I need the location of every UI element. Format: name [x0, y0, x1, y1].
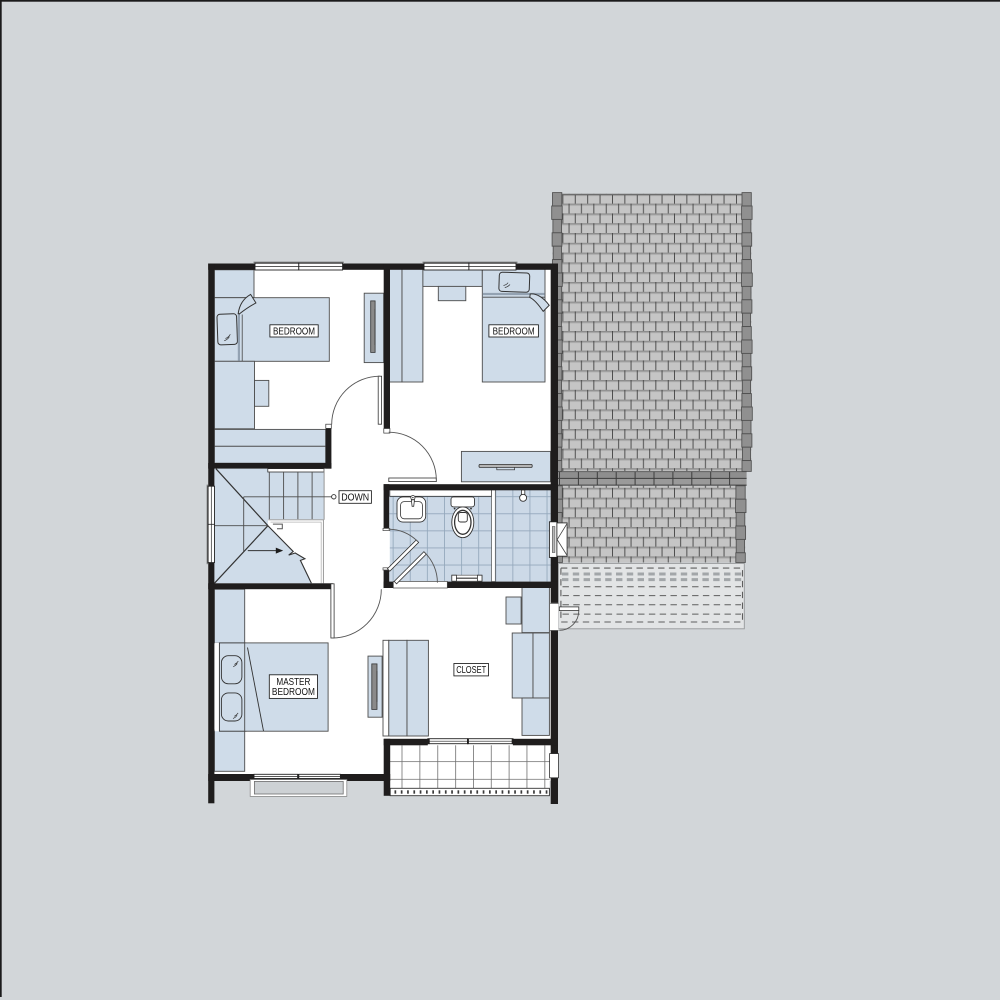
svg-text:BEDROOM: BEDROOM: [273, 326, 315, 337]
svg-text:DOWN: DOWN: [341, 492, 369, 503]
svg-text:CLOSET: CLOSET: [456, 665, 486, 676]
svg-text:BEDROOM: BEDROOM: [493, 326, 535, 337]
svg-text:BEDROOM: BEDROOM: [272, 687, 315, 698]
